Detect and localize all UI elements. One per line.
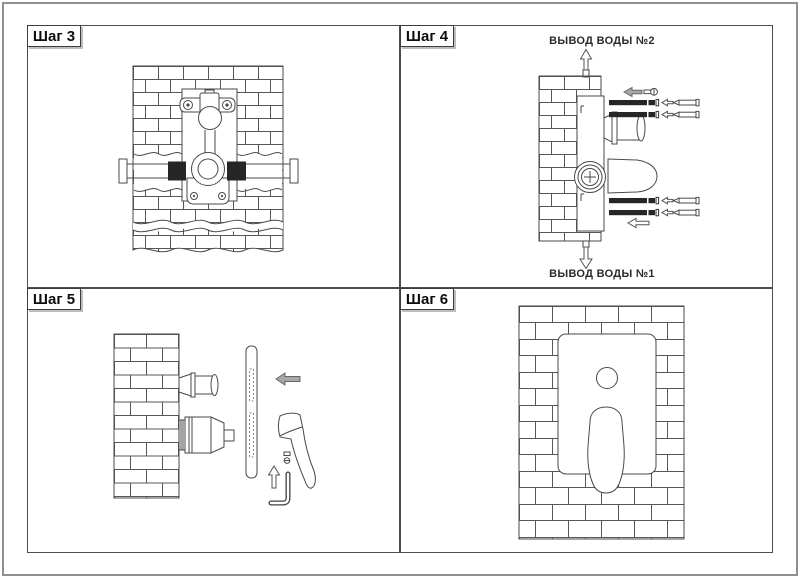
water-outlet-2-label: ВЫВОД ВОДЫ №2 bbox=[549, 35, 655, 47]
diverter-knob-icon bbox=[597, 368, 618, 389]
hardware-bottom bbox=[609, 197, 699, 227]
protective-cone-icon bbox=[608, 159, 657, 193]
step-label-text: Шаг 3 bbox=[33, 28, 75, 45]
hardware-top bbox=[609, 88, 699, 118]
valve-body bbox=[179, 417, 234, 453]
panel-step-6: Шаг 6 bbox=[400, 288, 773, 553]
step-label-5: Шаг 5 bbox=[27, 288, 81, 310]
panel-step-4: Шаг 4 ВЫВОД ВОДЫ №2 bbox=[400, 25, 773, 288]
step-4-drawing: ВЫВОД ВОДЫ №2 bbox=[401, 26, 772, 287]
spout-connector bbox=[179, 373, 218, 397]
step-label-3: Шаг 3 bbox=[27, 25, 81, 47]
bolt-and-anchor-row bbox=[609, 209, 699, 215]
step-label-text: Шаг 4 bbox=[406, 28, 448, 45]
step-label-4: Шаг 4 bbox=[400, 25, 454, 47]
bolt-and-anchor-row bbox=[609, 197, 699, 203]
steps-grid: Шаг 3 bbox=[27, 25, 773, 553]
step-5-drawing bbox=[28, 289, 399, 552]
set-screw-icon bbox=[284, 452, 290, 463]
bolt-and-anchor-row bbox=[609, 111, 699, 117]
step-label-text: Шаг 6 bbox=[406, 291, 448, 308]
step-label-text: Шаг 5 bbox=[33, 291, 75, 308]
step-3-drawing bbox=[28, 26, 399, 287]
up-arrow-icon bbox=[581, 50, 592, 72]
faceplate-side bbox=[246, 346, 257, 478]
left-arrow-icon bbox=[628, 218, 649, 227]
left-arrow-icon bbox=[624, 88, 642, 97]
panel-step-5: Шаг 5 bbox=[27, 288, 400, 553]
brick-wall bbox=[114, 334, 179, 498]
step-6-drawing bbox=[401, 289, 772, 552]
instruction-sheet: Шаг 3 bbox=[0, 0, 800, 578]
down-arrow-icon bbox=[580, 247, 592, 269]
step-label-6: Шаг 6 bbox=[400, 288, 454, 310]
up-arrow-icon bbox=[269, 466, 280, 488]
handle-lever bbox=[588, 407, 625, 493]
panel-step-3: Шаг 3 bbox=[27, 25, 400, 288]
handle-lever bbox=[279, 413, 316, 488]
left-arrow-icon bbox=[276, 373, 300, 385]
bolt-and-anchor-row bbox=[609, 99, 699, 105]
water-outlet-1-label: ВЫВОД ВОДЫ №1 bbox=[549, 268, 655, 280]
